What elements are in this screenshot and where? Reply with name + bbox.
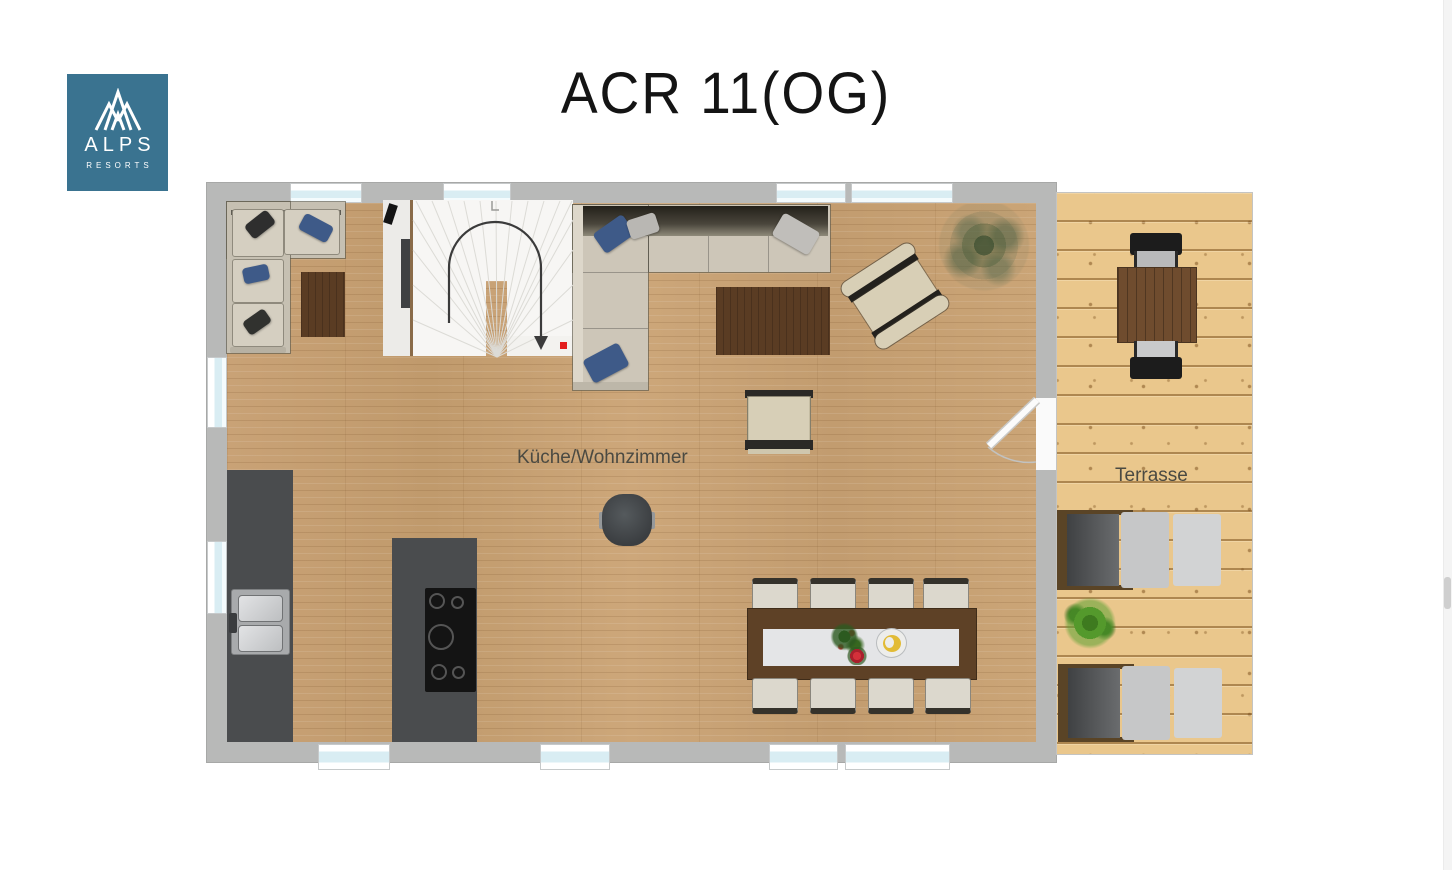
main-room-label: Küche/Wohnzimmer [517,447,688,469]
terrace-door-opening [1036,398,1056,470]
window [776,183,846,203]
sun-lounger [1058,664,1224,742]
dining-chair [925,678,971,714]
kitchen-sink [231,589,290,655]
sun-lounger [1057,510,1222,590]
terrace-chair [1130,233,1182,271]
stool [602,494,652,546]
dining-chair [810,578,856,612]
dining-chair [868,678,914,714]
indoor-plant [936,204,1032,296]
rug-small [301,272,345,337]
window [540,744,610,770]
page-title: ACR 11(OG) [36,60,1415,127]
armchair-middle [745,390,813,454]
stair-floor-notch [486,281,507,356]
dining-chair [923,578,969,612]
logo-brand-bottom: RESORTS [82,161,153,170]
dining-table [747,608,977,680]
shelf-unit [401,239,410,308]
dining-chair [868,578,914,612]
red-marker-dot [560,342,567,349]
window [290,183,362,203]
logo-brand-top: ALPS [79,134,155,157]
scrollbar-track[interactable] [1443,0,1452,870]
dining-chair [810,678,856,714]
window [207,541,227,614]
terrace-chair [1130,341,1182,379]
dining-chair [752,578,798,612]
scrollbar-thumb[interactable] [1444,577,1451,609]
window [207,357,227,428]
window [845,744,950,770]
window [851,183,953,203]
terrace-label: Terrasse [1115,465,1188,487]
cooktop [425,588,476,692]
fruit-plate [876,628,907,658]
rose-decor [847,647,867,665]
floorplan-page: ALPS RESORTS ACR 11(OG) [0,0,1452,870]
rug-main [716,287,830,355]
window [318,744,390,770]
faucet [229,613,237,633]
window [769,744,838,770]
terrace-plant [1061,596,1119,650]
terrace-table [1117,267,1197,343]
dining-chair [752,678,798,714]
